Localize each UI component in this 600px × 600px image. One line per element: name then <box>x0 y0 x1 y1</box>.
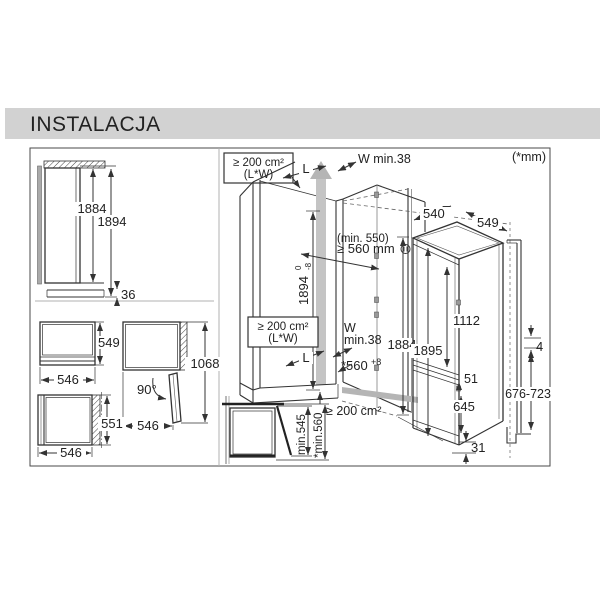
dim-upper-door-height: 1112 <box>453 313 480 328</box>
dim-min-niche: *min.560 <box>313 413 325 458</box>
vent-mid-line1: ≥ 200 cm² <box>257 321 308 333</box>
dim-niche-width-tol: +8 <box>371 357 381 367</box>
dim-length-label2: L <box>302 350 309 365</box>
units-note: (*mm) <box>512 150 546 164</box>
dim-niche-height-right: 1895 <box>414 343 443 358</box>
dim-panel-range: 676-723 <box>505 387 551 401</box>
dim-wall-clearance2-min: min.38 <box>344 333 382 347</box>
vent-bottom-label: ≥ 200 cm² <box>326 404 382 418</box>
vent-mid-line2: (L*W) <box>268 333 298 345</box>
installation-diagram: INSTALACJA (*mm) 1884 1894 36 <box>0 0 600 600</box>
dim-niche-height-tol-minus: -8 <box>304 262 313 270</box>
page-title: INSTALACJA <box>30 113 161 136</box>
dim-width-closed: 546 <box>57 372 79 387</box>
dim-depth-closed: 549 <box>98 335 120 350</box>
dim-niche-height-tol-plus: 0 <box>294 265 303 270</box>
dim-total-depth-open: 1068 <box>191 356 220 371</box>
appliance-side-outline <box>45 168 80 283</box>
dim-appliance-width: 549 <box>477 215 499 230</box>
dim-panel-top-gap: 4 <box>536 339 543 354</box>
dim-plinth-height: 36 <box>121 287 135 302</box>
installation-page: INSTALACJA (*mm) 1884 1894 36 <box>0 0 600 600</box>
dim-appliance-depth: 540 <box>423 206 445 221</box>
dim-bottom-gap: 31 <box>471 440 485 455</box>
dim-lower-door-height: 645 <box>453 399 475 414</box>
dim-depth-with-door: 551 <box>101 416 123 431</box>
dim-min-wall: min.545 <box>296 414 308 455</box>
dim-niche-height: 1894 <box>296 276 311 305</box>
dim-width-with-door: 546 <box>60 445 82 460</box>
dim-total-height: 1894 <box>98 214 127 229</box>
dim-wall-clearance: W min.38 <box>358 152 411 166</box>
dim-length-label: L <box>302 161 309 176</box>
dim-door-angle: 90° <box>137 382 157 397</box>
dim-niche-width: *560 <box>341 358 368 373</box>
worktop-hatch <box>44 161 105 168</box>
dim-width-open: 546 <box>137 418 159 433</box>
vent-top-line1: ≥ 200 cm² <box>233 157 284 169</box>
dim-hinge-gap: 51 <box>464 372 478 386</box>
title-bar: INSTALACJA <box>5 108 600 139</box>
dim-depth-min: ≥ 560 mm <box>337 241 395 256</box>
